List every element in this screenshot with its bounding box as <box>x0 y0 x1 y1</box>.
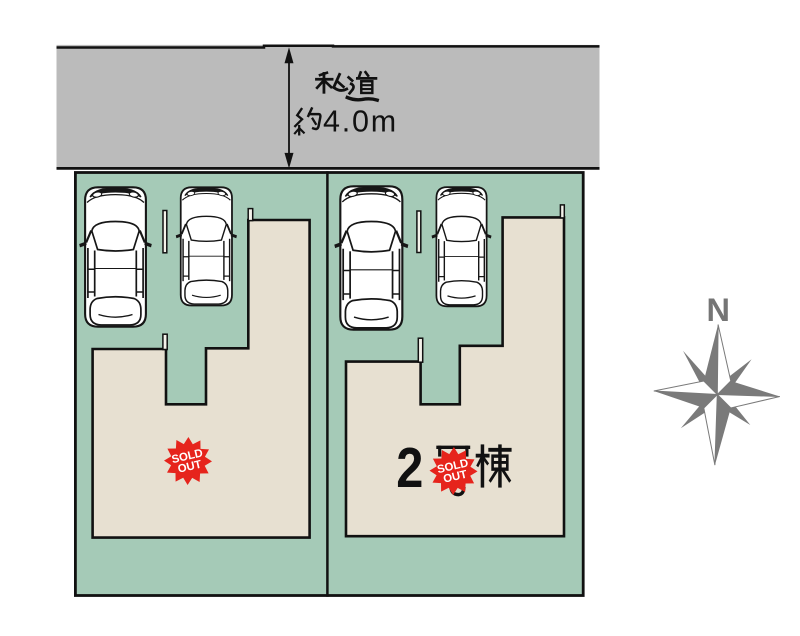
svg-text:N: N <box>707 292 730 328</box>
svg-text:2: 2 <box>396 436 423 499</box>
svg-text:4.0m: 4.0m <box>323 104 398 138</box>
